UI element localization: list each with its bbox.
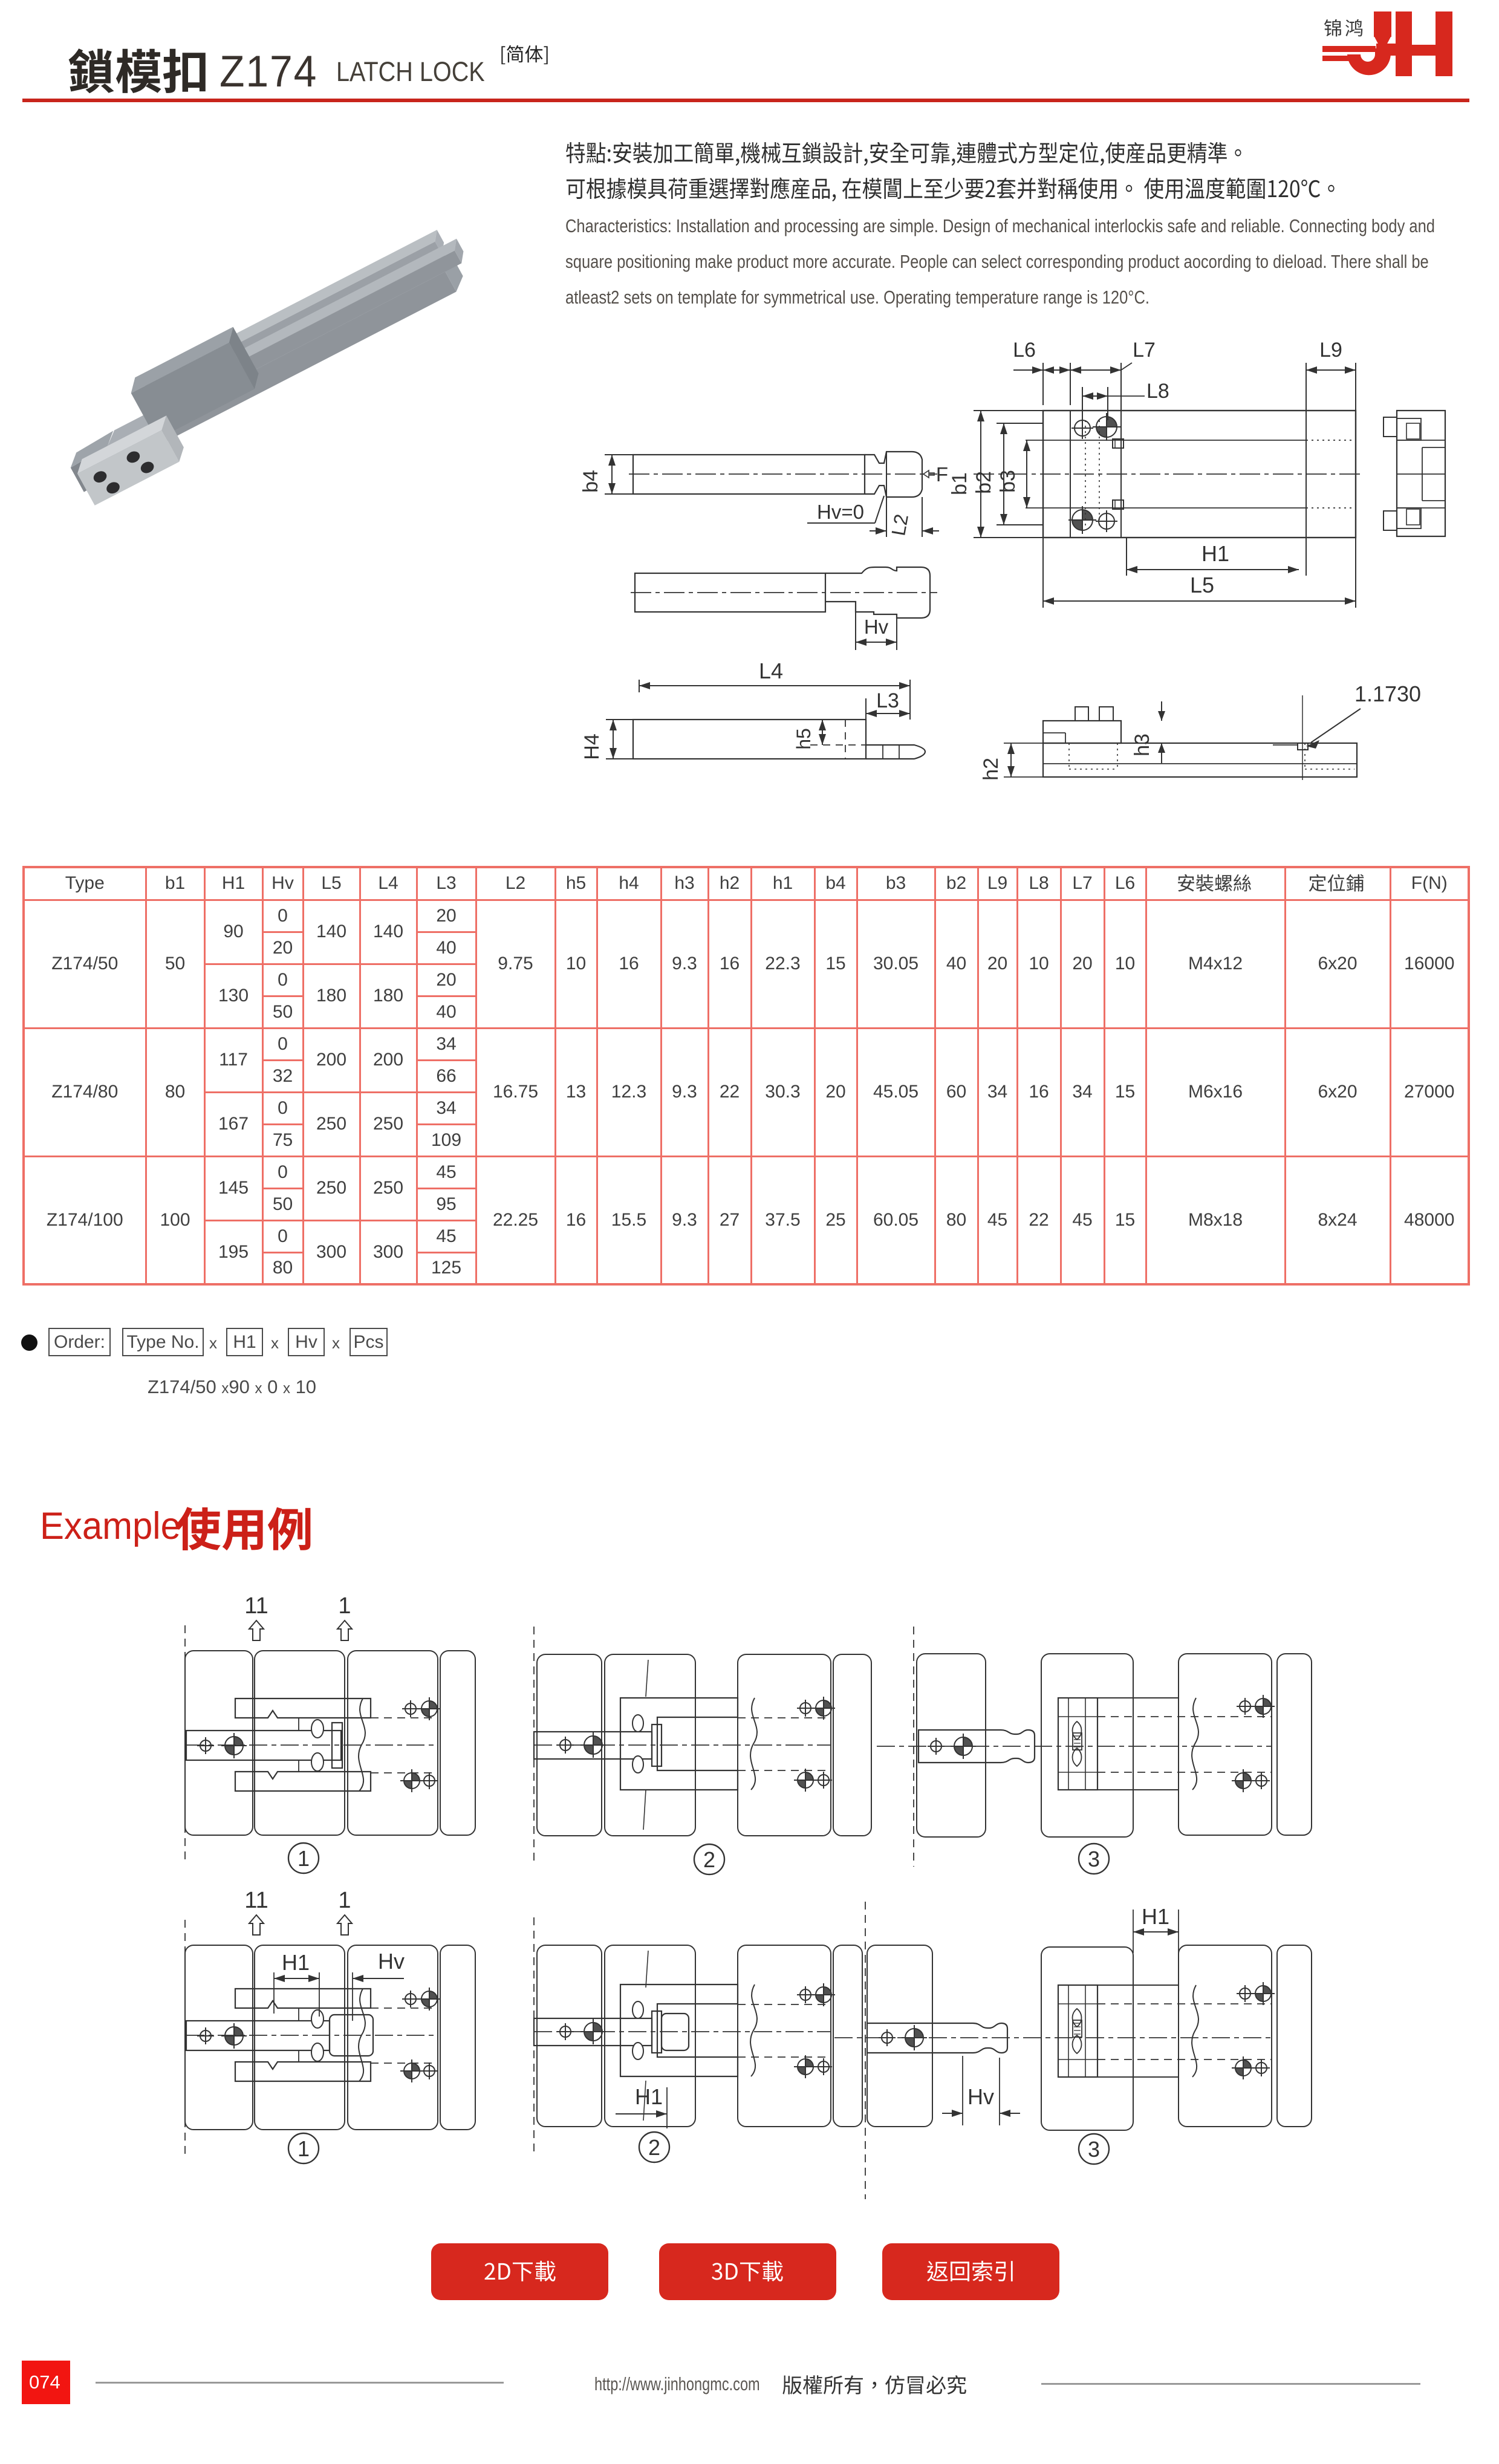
- svg-text:Hv=0: Hv=0: [817, 501, 864, 523]
- svg-text:2: 2: [648, 2135, 660, 2160]
- svg-text:h5: h5: [793, 728, 815, 750]
- svg-text:L5: L5: [1190, 573, 1214, 597]
- svg-text:L8: L8: [1146, 380, 1169, 403]
- svg-text:2: 2: [703, 1847, 715, 1872]
- svg-text:H1: H1: [635, 2084, 663, 2109]
- svg-text:Hv: Hv: [864, 616, 889, 638]
- svg-text:L6: L6: [1013, 339, 1036, 362]
- svg-text:h2: h2: [980, 758, 1003, 781]
- svg-text:H1: H1: [282, 1950, 310, 1975]
- svg-text:11: 11: [244, 1593, 268, 1619]
- svg-text:3: 3: [1088, 2137, 1100, 2162]
- svg-text:L7: L7: [1133, 339, 1156, 362]
- svg-text:1.1730: 1.1730: [1354, 681, 1421, 706]
- svg-text:b2: b2: [972, 471, 995, 494]
- svg-text:H1: H1: [1201, 541, 1229, 566]
- svg-text:Hv: Hv: [967, 2084, 994, 2109]
- svg-text:b1: b1: [948, 472, 971, 495]
- svg-text:11: 11: [244, 1888, 268, 1913]
- svg-text:1: 1: [298, 2136, 310, 2161]
- svg-text:H4: H4: [580, 733, 603, 759]
- svg-text:F: F: [936, 463, 948, 486]
- svg-text:1: 1: [298, 1846, 310, 1871]
- svg-text:L2: L2: [887, 512, 912, 537]
- svg-text:H1: H1: [1142, 1904, 1169, 1929]
- svg-text:L9: L9: [1319, 339, 1342, 362]
- svg-text:h3: h3: [1131, 733, 1154, 756]
- svg-text:3: 3: [1088, 1847, 1100, 1871]
- svg-text:1: 1: [338, 1593, 351, 1619]
- svg-text:b4: b4: [579, 470, 602, 493]
- svg-text:b3: b3: [997, 470, 1019, 493]
- svg-text:1: 1: [338, 1888, 351, 1913]
- svg-text:L3: L3: [876, 689, 899, 712]
- svg-text:Hv: Hv: [378, 1949, 405, 1974]
- svg-text:L4: L4: [759, 658, 783, 683]
